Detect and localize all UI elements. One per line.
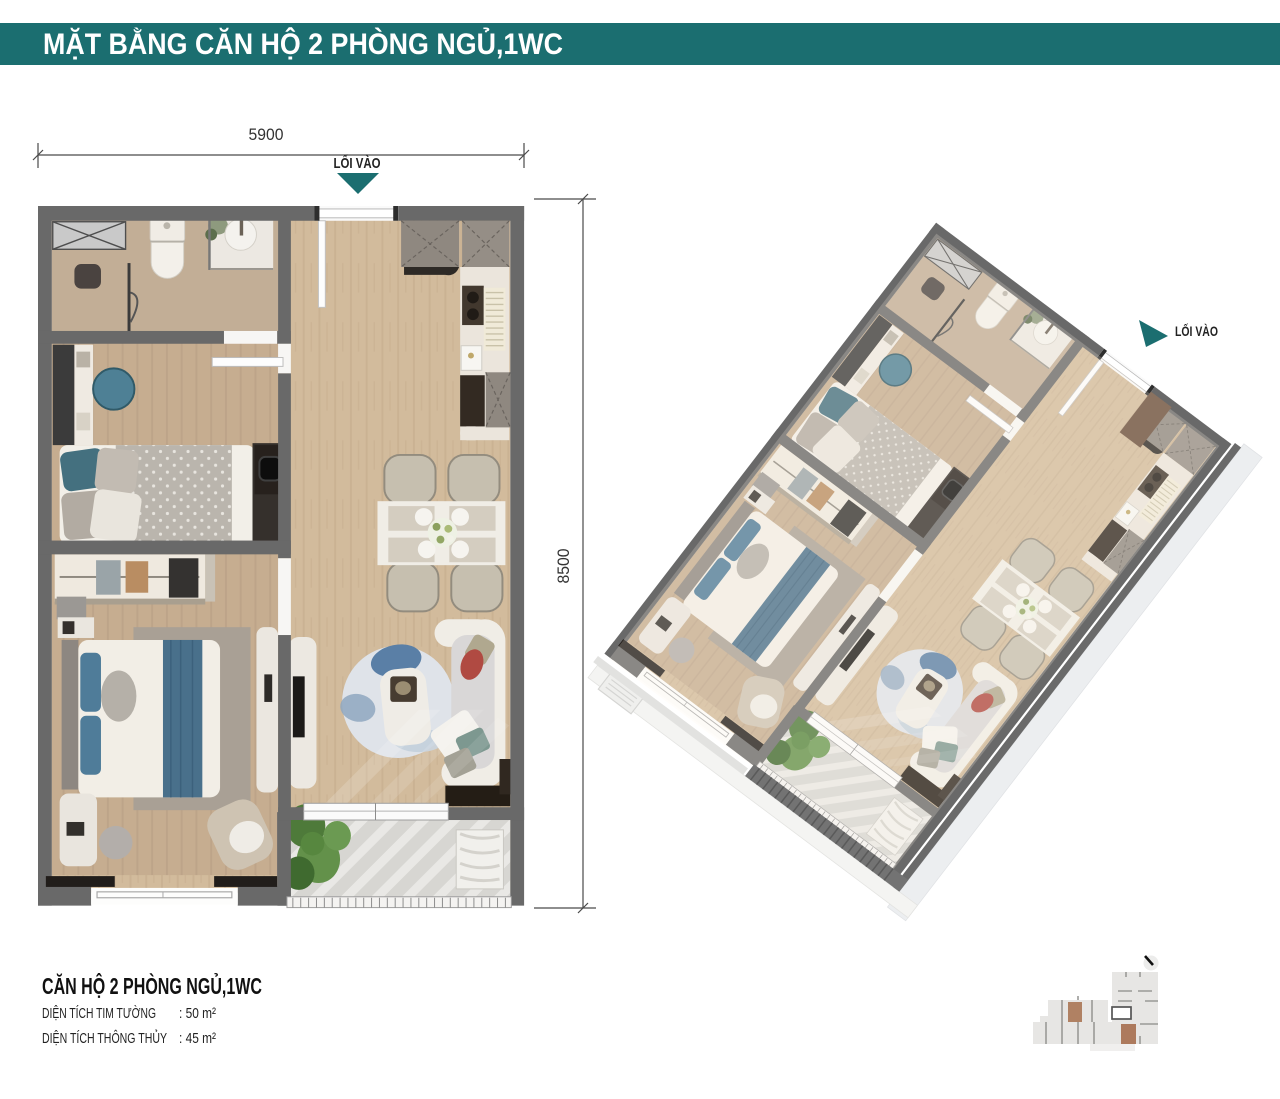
svg-text:LỐI VÀO: LỐI VÀO bbox=[1175, 322, 1218, 339]
svg-text:DIỆN TÍCH THÔNG THỦY: DIỆN TÍCH THÔNG THỦY bbox=[42, 1029, 167, 1047]
svg-text:5900: 5900 bbox=[249, 125, 284, 144]
svg-text:8500: 8500 bbox=[554, 549, 573, 584]
svg-text:: 45 m²: : 45 m² bbox=[179, 1030, 216, 1047]
svg-text:CĂN HỘ 2 PHÒNG NGỦ,1WC: CĂN HỘ 2 PHÒNG NGỦ,1WC bbox=[42, 971, 262, 999]
svg-text:LỐI VÀO: LỐI VÀO bbox=[334, 154, 381, 172]
svg-text:MẶT BẰNG CĂN HỘ 2 PHÒNG NGỦ,1W: MẶT BẰNG CĂN HỘ 2 PHÒNG NGỦ,1WC bbox=[43, 27, 563, 61]
svg-text:DIỆN TÍCH TIM TƯỜNG: DIỆN TÍCH TIM TƯỜNG bbox=[42, 1005, 156, 1022]
svg-text:: 50 m²: : 50 m² bbox=[179, 1005, 216, 1022]
